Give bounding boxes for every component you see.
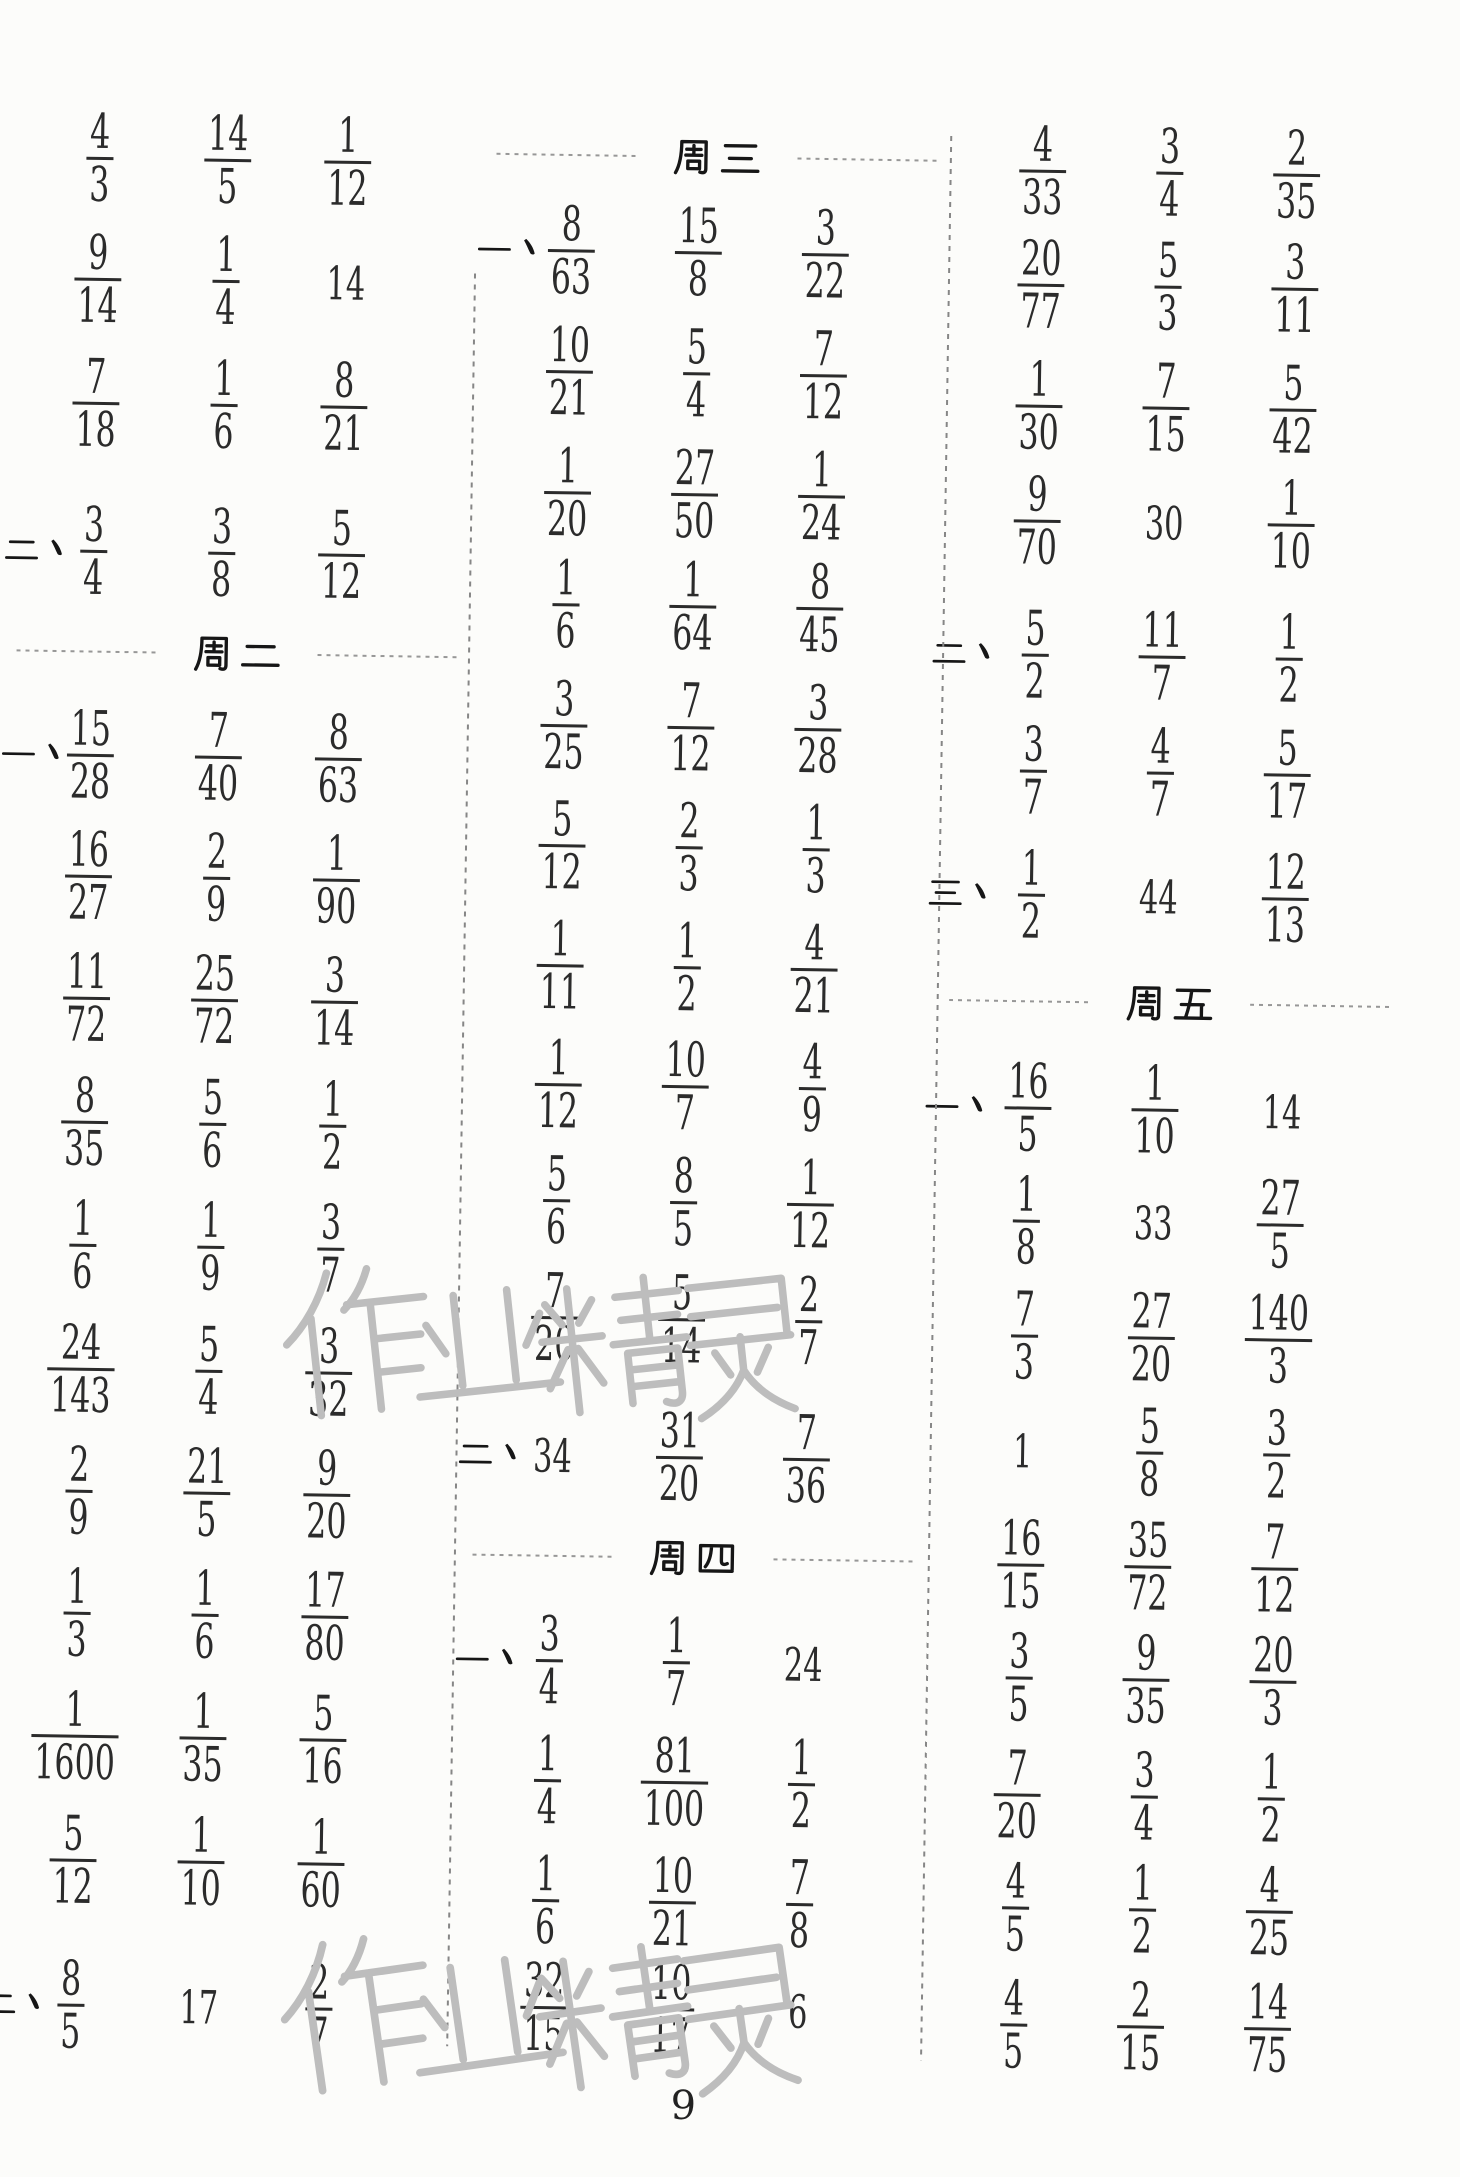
- fraction-denominator: 8: [207, 558, 234, 603]
- fraction-numerator: 3: [1263, 1406, 1290, 1451]
- fraction-denominator: 2: [787, 1789, 814, 1834]
- cjk-glyph-二: [931, 634, 968, 671]
- fraction-denominator: 10: [1131, 1114, 1179, 1159]
- fraction-numerator: 3: [1131, 1748, 1158, 1793]
- fraction-numerator: 27: [671, 446, 719, 491]
- answer-fraction: 14: [526, 1732, 568, 1830]
- fraction-denominator: 11: [536, 970, 584, 1015]
- fraction-numerator: 4: [801, 921, 828, 966]
- header-rule-right: [773, 1558, 913, 1562]
- fraction-denominator: 8: [684, 257, 711, 302]
- cjk-glyph-一: [0, 734, 37, 771]
- fraction-numerator: 11: [63, 949, 111, 994]
- fraction-denominator: 21: [320, 412, 368, 457]
- problem-set-label: [0, 1984, 53, 2025]
- answer-fraction: 56: [192, 1075, 234, 1173]
- cjk-glyph-、: [967, 634, 1004, 671]
- cjk-glyph-、: [963, 874, 1000, 911]
- fraction-numerator: 1: [680, 558, 707, 603]
- answer-fraction: 124: [785, 448, 858, 546]
- fraction-numerator: 10: [546, 323, 594, 368]
- fraction-denominator: 50: [670, 499, 718, 544]
- fraction-numerator: 1: [1129, 1861, 1156, 1906]
- fraction-denominator: 2: [1275, 664, 1302, 709]
- fraction-denominator: 1600: [31, 1740, 119, 1786]
- cjk-glyph-一: [476, 230, 513, 267]
- fraction-denominator: 5: [999, 2029, 1026, 2074]
- fraction-numerator: 7: [678, 679, 705, 724]
- answer-fraction: 11600: [8, 1687, 142, 1786]
- fraction-numerator: 1: [190, 1690, 217, 1735]
- answer-fraction: 130: [1003, 357, 1076, 455]
- fraction-denominator: 8: [1135, 1458, 1162, 1503]
- answer-fraction: 718: [60, 354, 133, 452]
- fraction-denominator: 4: [79, 556, 106, 601]
- answer-fraction: 110: [1255, 476, 1328, 574]
- header-rule-right: [318, 654, 458, 658]
- fraction-denominator: 4: [533, 1785, 560, 1830]
- watermark: [269, 1925, 784, 2105]
- answer-fraction: 53: [1147, 238, 1189, 336]
- fraction-denominator: 20: [655, 1462, 703, 1507]
- fraction-numerator: 81: [651, 1734, 699, 1779]
- cjk-glyph-周: [672, 136, 715, 179]
- watermark: [272, 1255, 787, 1431]
- header-rule-right: [1250, 1004, 1390, 1008]
- fraction-denominator: 10: [1267, 529, 1315, 574]
- fraction-numerator: 5: [60, 1812, 87, 1857]
- fraction-numerator: 1: [1013, 1172, 1040, 1217]
- fraction-denominator: 12: [324, 167, 372, 212]
- answer-fraction: 12: [1010, 846, 1052, 944]
- cjk-glyph-、: [960, 1087, 997, 1124]
- answer-fraction: 17: [655, 1614, 697, 1712]
- fraction-numerator: 7: [1011, 1287, 1038, 1332]
- fraction-denominator: 17: [1263, 779, 1311, 824]
- cjk-glyph-二: [3, 530, 40, 567]
- fraction-denominator: 5: [1001, 1912, 1028, 1957]
- answer-fraction: 863: [302, 710, 375, 808]
- answer-fraction: 215: [1104, 1978, 1177, 2076]
- answer-fraction: 14: [205, 233, 247, 331]
- fraction-numerator: 1: [1026, 357, 1053, 402]
- answer-fraction: 54: [188, 1322, 230, 1420]
- fraction-denominator: 5: [214, 165, 241, 210]
- workbook-answer-page: 9 43145112914141471816821343851215287408…: [0, 0, 1460, 2177]
- scanned-sheet: 9 43145112914141471816821343851215287408…: [0, 0, 1460, 2177]
- fraction-denominator: 25: [1245, 1916, 1293, 1961]
- fraction-numerator: 1: [319, 1077, 346, 1122]
- cjk-glyph-二: [457, 1434, 494, 1471]
- cjk-glyph-灵: [649, 1254, 834, 1439]
- fraction-denominator: 36: [782, 1464, 830, 1509]
- fraction-denominator: 72: [62, 1003, 110, 1048]
- fraction-numerator: 10: [662, 1038, 710, 1083]
- fraction-numerator: 12: [1262, 850, 1310, 895]
- fraction-numerator: 2: [1283, 127, 1310, 172]
- fraction-denominator: 7: [1148, 662, 1175, 707]
- fraction-denominator: 2: [673, 972, 700, 1017]
- fraction-numerator: 3: [1156, 125, 1183, 170]
- answer-fraction: 12: [1250, 1750, 1292, 1848]
- answer-number: 24: [774, 1637, 833, 1692]
- cjk-glyph-、: [39, 531, 76, 568]
- header-rule-right: [797, 158, 937, 162]
- fraction-numerator: 1: [797, 1156, 824, 1201]
- fraction-denominator: 12: [317, 560, 365, 605]
- answer-fraction: 85: [50, 1956, 92, 2054]
- answer-fraction: 160: [285, 1815, 358, 1913]
- fraction-numerator: 17: [302, 1568, 350, 1613]
- answer-fraction: 12: [1121, 1861, 1163, 1959]
- fraction-numerator: 11: [1139, 608, 1187, 653]
- fraction-numerator: 3: [812, 206, 839, 251]
- fraction-numerator: 1: [1142, 1061, 1169, 1106]
- answer-fraction: 2720: [1115, 1289, 1188, 1387]
- fraction-numerator: 1: [62, 1688, 89, 1733]
- fraction-numerator: 1: [808, 448, 835, 493]
- fraction-numerator: 8: [806, 560, 833, 605]
- answer-fraction: 712: [787, 327, 860, 425]
- fraction-numerator: 8: [331, 359, 358, 404]
- answer-fraction: 516: [287, 1691, 360, 1789]
- answer-fraction: 914: [62, 230, 135, 328]
- answer-fraction: 863: [535, 202, 608, 300]
- fraction-denominator: 12: [667, 732, 715, 777]
- answer-fraction: 112: [522, 1036, 595, 1134]
- fraction-denominator: 21: [790, 974, 838, 1019]
- fraction-numerator: 3: [80, 503, 107, 548]
- answer-fraction: 24143: [29, 1320, 132, 1419]
- answer-fraction: 16: [203, 357, 245, 455]
- fraction-denominator: 70: [1013, 525, 1061, 570]
- answer-fraction: 19: [190, 1198, 232, 1296]
- answer-fraction: 34: [528, 1612, 570, 1710]
- fraction-numerator: 1: [554, 444, 581, 489]
- fraction-numerator: 15: [675, 204, 723, 249]
- fraction-numerator: 3: [1282, 241, 1309, 286]
- fraction-numerator: 1: [1018, 846, 1045, 891]
- fraction-numerator: 4: [1256, 1863, 1283, 1908]
- fraction-numerator: 1: [674, 919, 701, 964]
- fraction-denominator: 72: [1124, 1571, 1172, 1616]
- answer-fraction: 34: [1149, 124, 1191, 222]
- fraction-denominator: 35: [179, 1743, 227, 1788]
- answer-fraction: 235: [1260, 126, 1333, 224]
- answer-fraction: 1403: [1227, 1291, 1330, 1390]
- fraction-denominator: 3: [1154, 292, 1181, 337]
- fraction-denominator: 100: [640, 1787, 708, 1832]
- fraction-denominator: 30: [1015, 410, 1063, 455]
- cjk-glyph-周: [192, 632, 235, 675]
- fraction-numerator: 4: [1147, 724, 1174, 769]
- fraction-denominator: 4: [682, 378, 709, 423]
- column-divider: [446, 273, 476, 2046]
- answer-fraction: 135: [167, 1689, 240, 1787]
- answer-fraction: 190: [300, 831, 373, 929]
- fraction-numerator: 9: [1133, 1631, 1160, 1676]
- fraction-numerator: 14: [204, 112, 252, 157]
- fraction-denominator: 7: [1019, 776, 1046, 821]
- fraction-numerator: 1: [1276, 610, 1303, 655]
- fraction-denominator: 6: [191, 1620, 218, 1665]
- fraction-denominator: 20: [1127, 1342, 1175, 1387]
- fraction-numerator: 8: [325, 711, 352, 756]
- cjk-glyph-二: [0, 1984, 17, 2021]
- answer-fraction: 32: [1256, 1406, 1298, 1504]
- fraction-numerator: 5: [1022, 606, 1049, 651]
- fraction-numerator: 1: [69, 1197, 96, 1242]
- fraction-denominator: 16: [299, 1744, 347, 1789]
- fraction-denominator: 6: [552, 609, 579, 654]
- fraction-denominator: 12: [786, 1209, 834, 1254]
- answer-fraction: 110: [165, 1813, 238, 1911]
- problem-set-label: [454, 1639, 527, 1680]
- fraction-denominator: 3: [675, 852, 702, 897]
- fraction-denominator: 25: [540, 730, 588, 775]
- answer-number: 44: [1129, 870, 1188, 925]
- answer-fraction: 328: [782, 681, 855, 779]
- fraction-denominator: 12: [534, 1089, 582, 1134]
- answer-fraction: 58: [1129, 1404, 1171, 1502]
- answer-fraction: 720: [981, 1746, 1054, 1844]
- fraction-numerator: 20: [1250, 1633, 1298, 1678]
- fraction-numerator: 10: [649, 1854, 697, 1899]
- fraction-numerator: 8: [558, 202, 585, 247]
- fraction-denominator: 35: [1122, 1684, 1170, 1729]
- fraction-denominator: 6: [542, 1205, 569, 1250]
- fraction-denominator: 11: [1271, 293, 1319, 338]
- answer-fraction: 23: [668, 799, 710, 897]
- answer-number: 14: [316, 256, 375, 311]
- fraction-denominator: 8: [1012, 1226, 1039, 1271]
- answer-fraction: 715: [1130, 359, 1203, 457]
- answer-fraction: 322: [789, 206, 862, 304]
- answer-fraction: 12: [1268, 610, 1310, 708]
- fraction-denominator: 5: [669, 1207, 696, 1252]
- fraction-numerator: 1: [1278, 476, 1305, 521]
- answer-fraction: 38: [201, 505, 243, 603]
- cjk-glyph-二: [239, 633, 282, 676]
- header-rule-left: [472, 1554, 612, 1558]
- fraction-denominator: 35: [1272, 180, 1320, 225]
- fraction-numerator: 35: [1124, 1518, 1172, 1563]
- answer-fraction: 970: [1001, 472, 1074, 570]
- fraction-denominator: 14: [310, 1006, 358, 1051]
- fraction-denominator: 12: [799, 380, 847, 425]
- answer-fraction: 165: [992, 1059, 1065, 1157]
- fraction-numerator: 1: [553, 556, 580, 601]
- fraction-denominator: 9: [798, 1093, 825, 1138]
- fraction-denominator: 9: [197, 1252, 224, 1297]
- week-header: [496, 133, 938, 182]
- fraction-numerator: 3: [1020, 722, 1047, 767]
- answer-fraction: 1780: [289, 1568, 362, 1666]
- fraction-denominator: 4: [212, 286, 239, 331]
- answer-number: 34: [523, 1428, 582, 1483]
- fraction-denominator: 5: [57, 2010, 84, 2055]
- answer-fraction: 16: [62, 1196, 104, 1294]
- fraction-numerator: 8: [670, 1154, 697, 1199]
- fraction-denominator: 15: [997, 1569, 1045, 1614]
- fraction-numerator: 5: [328, 507, 355, 552]
- fraction-denominator: 143: [46, 1373, 114, 1418]
- fraction-numerator: 1: [192, 1567, 219, 1612]
- fraction-denominator: 13: [1261, 903, 1309, 948]
- fraction-denominator: 42: [1269, 414, 1317, 459]
- fraction-numerator: 4: [1000, 1976, 1027, 2021]
- fraction-numerator: 1: [803, 801, 830, 846]
- fraction-denominator: 28: [66, 760, 114, 805]
- fraction-denominator: 22: [801, 259, 849, 304]
- answer-fraction: 12: [666, 919, 708, 1017]
- answer-fraction: 112: [774, 1156, 847, 1254]
- fraction-denominator: 2: [1262, 1460, 1289, 1505]
- problem-set-label: [457, 1434, 530, 1475]
- fraction-denominator: 33: [1018, 176, 1066, 221]
- fraction-numerator: 21: [183, 1444, 231, 1489]
- answer-fraction: 433: [1006, 122, 1079, 220]
- fraction-denominator: 6: [210, 410, 237, 455]
- header-rule-left: [949, 999, 1089, 1003]
- fraction-numerator: 5: [199, 1076, 226, 1121]
- answer-fraction: 52: [1014, 606, 1056, 704]
- answer-fraction: 311: [1259, 240, 1332, 338]
- answer-fraction: 215: [171, 1444, 244, 1542]
- fraction-numerator: 7: [786, 1856, 813, 1901]
- fraction-denominator: 9: [202, 883, 229, 928]
- fraction-numerator: 1: [1258, 1750, 1285, 1795]
- fraction-numerator: 1: [64, 1565, 91, 1610]
- answer-fraction: 29: [195, 830, 237, 928]
- fraction-numerator: 5: [1280, 361, 1307, 406]
- fraction-denominator: 3: [1264, 1345, 1291, 1390]
- answer-fraction: 49: [791, 1040, 833, 1138]
- fraction-denominator: 7: [1146, 778, 1173, 823]
- fraction-numerator: 3: [317, 1200, 344, 1245]
- cjk-glyph-一: [924, 1087, 961, 1124]
- week-header: [472, 1534, 914, 1583]
- fraction-denominator: 63: [314, 764, 362, 809]
- fraction-denominator: 28: [794, 734, 842, 779]
- fraction-numerator: 25: [191, 951, 239, 996]
- answer-number: 17: [169, 1980, 228, 2035]
- fraction-numerator: 140: [1245, 1291, 1313, 1336]
- answer-number: 33: [1124, 1196, 1183, 1251]
- fraction-numerator: 3: [208, 505, 235, 550]
- fraction-numerator: 2: [66, 1443, 93, 1488]
- fraction-denominator: 27: [64, 881, 112, 926]
- answer-fraction: 120: [531, 444, 604, 542]
- answer-fraction: 314: [298, 953, 371, 1051]
- fraction-numerator: 2: [1127, 1978, 1154, 2023]
- fraction-denominator: 40: [194, 762, 242, 807]
- fraction-numerator: 4: [1002, 1859, 1029, 1904]
- cjk-glyph-周: [1125, 982, 1168, 1025]
- answer-fraction: 512: [526, 797, 599, 895]
- fraction-denominator: 6: [198, 1129, 225, 1174]
- answer-fraction: 2572: [178, 951, 251, 1049]
- fraction-denominator: 4: [195, 1376, 222, 1421]
- answer-fraction: 425: [1233, 1863, 1306, 1961]
- fraction-denominator: 80: [301, 1621, 349, 1666]
- answer-fraction: 2077: [1005, 236, 1078, 334]
- fraction-numerator: 27: [1257, 1176, 1305, 1221]
- fraction-numerator: 8: [57, 1956, 84, 2001]
- fraction-denominator: 2: [1017, 900, 1044, 945]
- answer-fraction: 275: [1244, 1176, 1317, 1274]
- fraction-numerator: 4: [86, 110, 113, 155]
- answer-fraction: 110: [1119, 1061, 1192, 1159]
- fraction-numerator: 2: [203, 830, 230, 875]
- fraction-denominator: 3: [802, 854, 829, 899]
- fraction-numerator: 5: [549, 797, 576, 842]
- cjk-glyph-周: [648, 1536, 691, 1579]
- fraction-denominator: 21: [545, 376, 593, 421]
- fraction-numerator: 24: [57, 1320, 105, 1365]
- answer-fraction: 13: [795, 801, 837, 899]
- fraction-denominator: 20: [993, 1799, 1041, 1844]
- fraction-denominator: 3: [86, 163, 113, 208]
- fraction-numerator: 9: [1024, 472, 1051, 517]
- fraction-denominator: 3: [63, 1618, 90, 1663]
- fraction-numerator: 16: [997, 1516, 1045, 1561]
- fraction-numerator: 3: [1006, 1629, 1033, 1674]
- fraction-numerator: 5: [1136, 1404, 1163, 1449]
- fraction-numerator: 8: [71, 1074, 98, 1119]
- header-rule-left: [17, 649, 157, 653]
- fraction-numerator: 15: [67, 706, 115, 751]
- answer-fraction: 712: [655, 679, 728, 777]
- fraction-denominator: 9: [65, 1496, 92, 1541]
- answer-fraction: 1213: [1249, 850, 1322, 948]
- fraction-denominator: 3: [1259, 1686, 1286, 1731]
- fraction-numerator: 3: [805, 681, 832, 726]
- answer-fraction: 935: [1110, 1631, 1183, 1729]
- week-header: [949, 979, 1391, 1028]
- fraction-denominator: 2: [1128, 1914, 1155, 1959]
- answer-fraction: 111: [524, 917, 597, 1015]
- fraction-denominator: 12: [1251, 1573, 1299, 1618]
- answer-fraction: 107: [649, 1038, 722, 1136]
- answer-fraction: 158: [662, 204, 735, 302]
- answer-fraction: 85: [662, 1154, 704, 1252]
- fraction-denominator: 20: [303, 1499, 351, 1544]
- fraction-numerator: 1: [323, 832, 350, 877]
- fraction-numerator: 1: [534, 1732, 561, 1777]
- fraction-numerator: 5: [543, 1152, 570, 1197]
- answer-number: 1: [1008, 1424, 1038, 1478]
- fraction-numerator: 1: [663, 1614, 690, 1659]
- fraction-numerator: 3: [321, 954, 348, 999]
- fraction-numerator: 1: [213, 233, 240, 278]
- fraction-denominator: 45: [796, 613, 844, 658]
- fraction-numerator: 5: [683, 325, 710, 370]
- fraction-denominator: 72: [190, 1005, 238, 1050]
- cjk-glyph-五: [1172, 983, 1215, 1026]
- problem-set-label: [3, 530, 76, 571]
- fraction-denominator: 10: [177, 1867, 225, 1912]
- answer-fraction: 43: [79, 110, 121, 208]
- fraction-denominator: 14: [74, 284, 122, 329]
- fraction-denominator: 4: [1130, 1801, 1157, 1846]
- answer-number: 30: [1134, 496, 1193, 551]
- fraction-denominator: 5: [1014, 1113, 1041, 1158]
- fraction-denominator: 4: [535, 1665, 562, 1710]
- fraction-denominator: 20: [543, 497, 591, 542]
- fraction-numerator: 2: [676, 799, 703, 844]
- fraction-numerator: 3: [536, 1612, 563, 1657]
